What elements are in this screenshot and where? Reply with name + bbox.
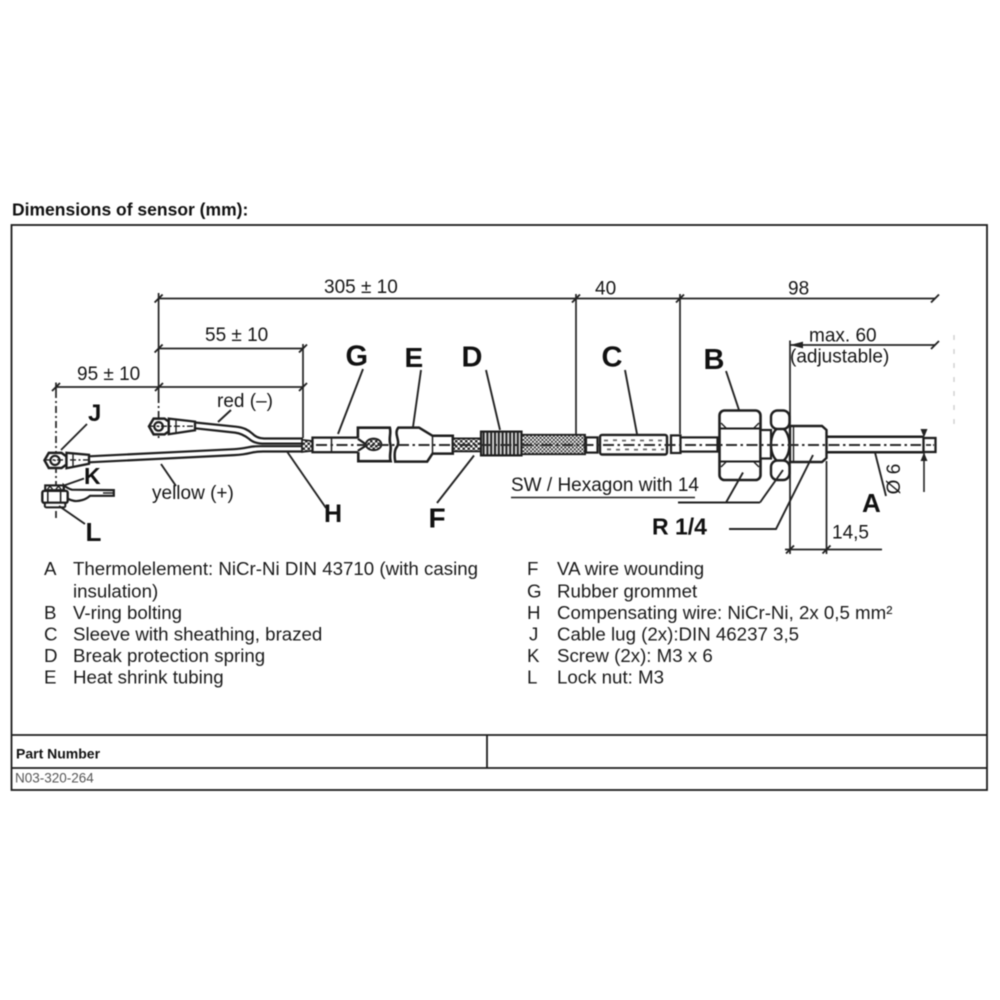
svg-text:Screw (2x): M3 x 6: Screw (2x): M3 x 6 (557, 645, 713, 666)
svg-text:J: J (88, 400, 101, 427)
svg-text:(adjustable): (adjustable) (790, 347, 889, 368)
svg-text:D: D (462, 342, 483, 374)
svg-text:N03-320-264: N03-320-264 (15, 771, 94, 786)
svg-text:40: 40 (595, 279, 616, 300)
svg-text:Thermolelement: NiCr-Ni DIN 43: Thermolelement: NiCr-Ni DIN 43710 (with … (73, 558, 478, 579)
svg-text:305 ± 10: 305 ± 10 (324, 277, 398, 298)
svg-text:K: K (527, 645, 540, 666)
svg-text:Sleeve with sheathing, brazed: Sleeve with sheathing, brazed (73, 624, 322, 645)
svg-text:Break protection spring: Break protection spring (73, 645, 265, 666)
svg-text:A: A (862, 488, 881, 518)
svg-text:F: F (429, 503, 446, 534)
svg-text:G: G (527, 581, 542, 602)
svg-text:55 ± 10: 55 ± 10 (205, 325, 268, 346)
svg-text:L: L (527, 667, 537, 688)
svg-text:C: C (44, 624, 58, 645)
svg-text:J: J (529, 624, 538, 645)
svg-text:14,5: 14,5 (832, 523, 869, 544)
svg-text:VA wire wounding: VA wire wounding (557, 558, 704, 579)
svg-text:Dimensions of sensor (mm):: Dimensions of sensor (mm): (12, 200, 248, 220)
svg-text:Cable lug (2x):DIN 46237 3,5: Cable lug (2x):DIN 46237 3,5 (557, 624, 799, 645)
svg-text:H: H (324, 500, 342, 528)
svg-text:G: G (346, 341, 369, 373)
svg-text:Part Number: Part Number (16, 746, 101, 762)
svg-text:Ø 6: Ø 6 (884, 464, 905, 495)
svg-text:95 ± 10: 95 ± 10 (77, 364, 140, 385)
svg-text:B: B (704, 344, 725, 376)
svg-text:C: C (602, 342, 623, 374)
svg-text:L: L (86, 517, 102, 547)
svg-text:V-ring bolting: V-ring bolting (73, 602, 182, 623)
svg-text:red (–): red (–) (217, 391, 273, 412)
svg-text:H: H (527, 602, 541, 623)
svg-text:E: E (44, 667, 56, 688)
svg-text:98: 98 (788, 279, 809, 300)
svg-text:insulation): insulation) (73, 581, 158, 602)
svg-text:Compensating wire: NiCr-Ni, 2x: Compensating wire: NiCr-Ni, 2x 0,5 mm² (557, 602, 892, 623)
svg-text:Lock nut: M3: Lock nut: M3 (557, 667, 664, 688)
svg-text:A: A (44, 558, 57, 579)
svg-text:SW / Hexagon with 14: SW / Hexagon with 14 (511, 475, 699, 496)
svg-text:yellow (+): yellow (+) (152, 483, 234, 504)
svg-text:max. 60: max. 60 (809, 326, 877, 347)
svg-text:F: F (527, 558, 538, 579)
svg-text:D: D (44, 645, 58, 666)
svg-text:Rubber grommet: Rubber grommet (557, 581, 698, 602)
svg-text:E: E (405, 342, 424, 373)
svg-text:R 1/4: R 1/4 (652, 514, 707, 540)
svg-text:K: K (84, 463, 101, 489)
svg-text:B: B (44, 602, 56, 623)
svg-text:Heat shrink tubing: Heat shrink tubing (73, 667, 224, 688)
